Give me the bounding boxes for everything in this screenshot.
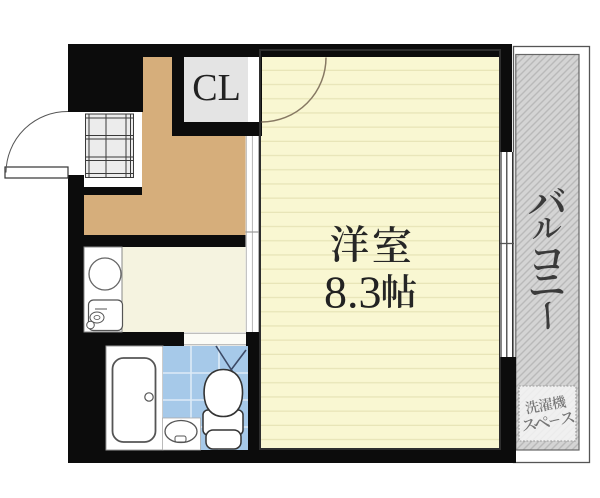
svg-text:CL: CL xyxy=(192,67,241,109)
svg-text:8.3: 8.3 xyxy=(324,267,382,318)
